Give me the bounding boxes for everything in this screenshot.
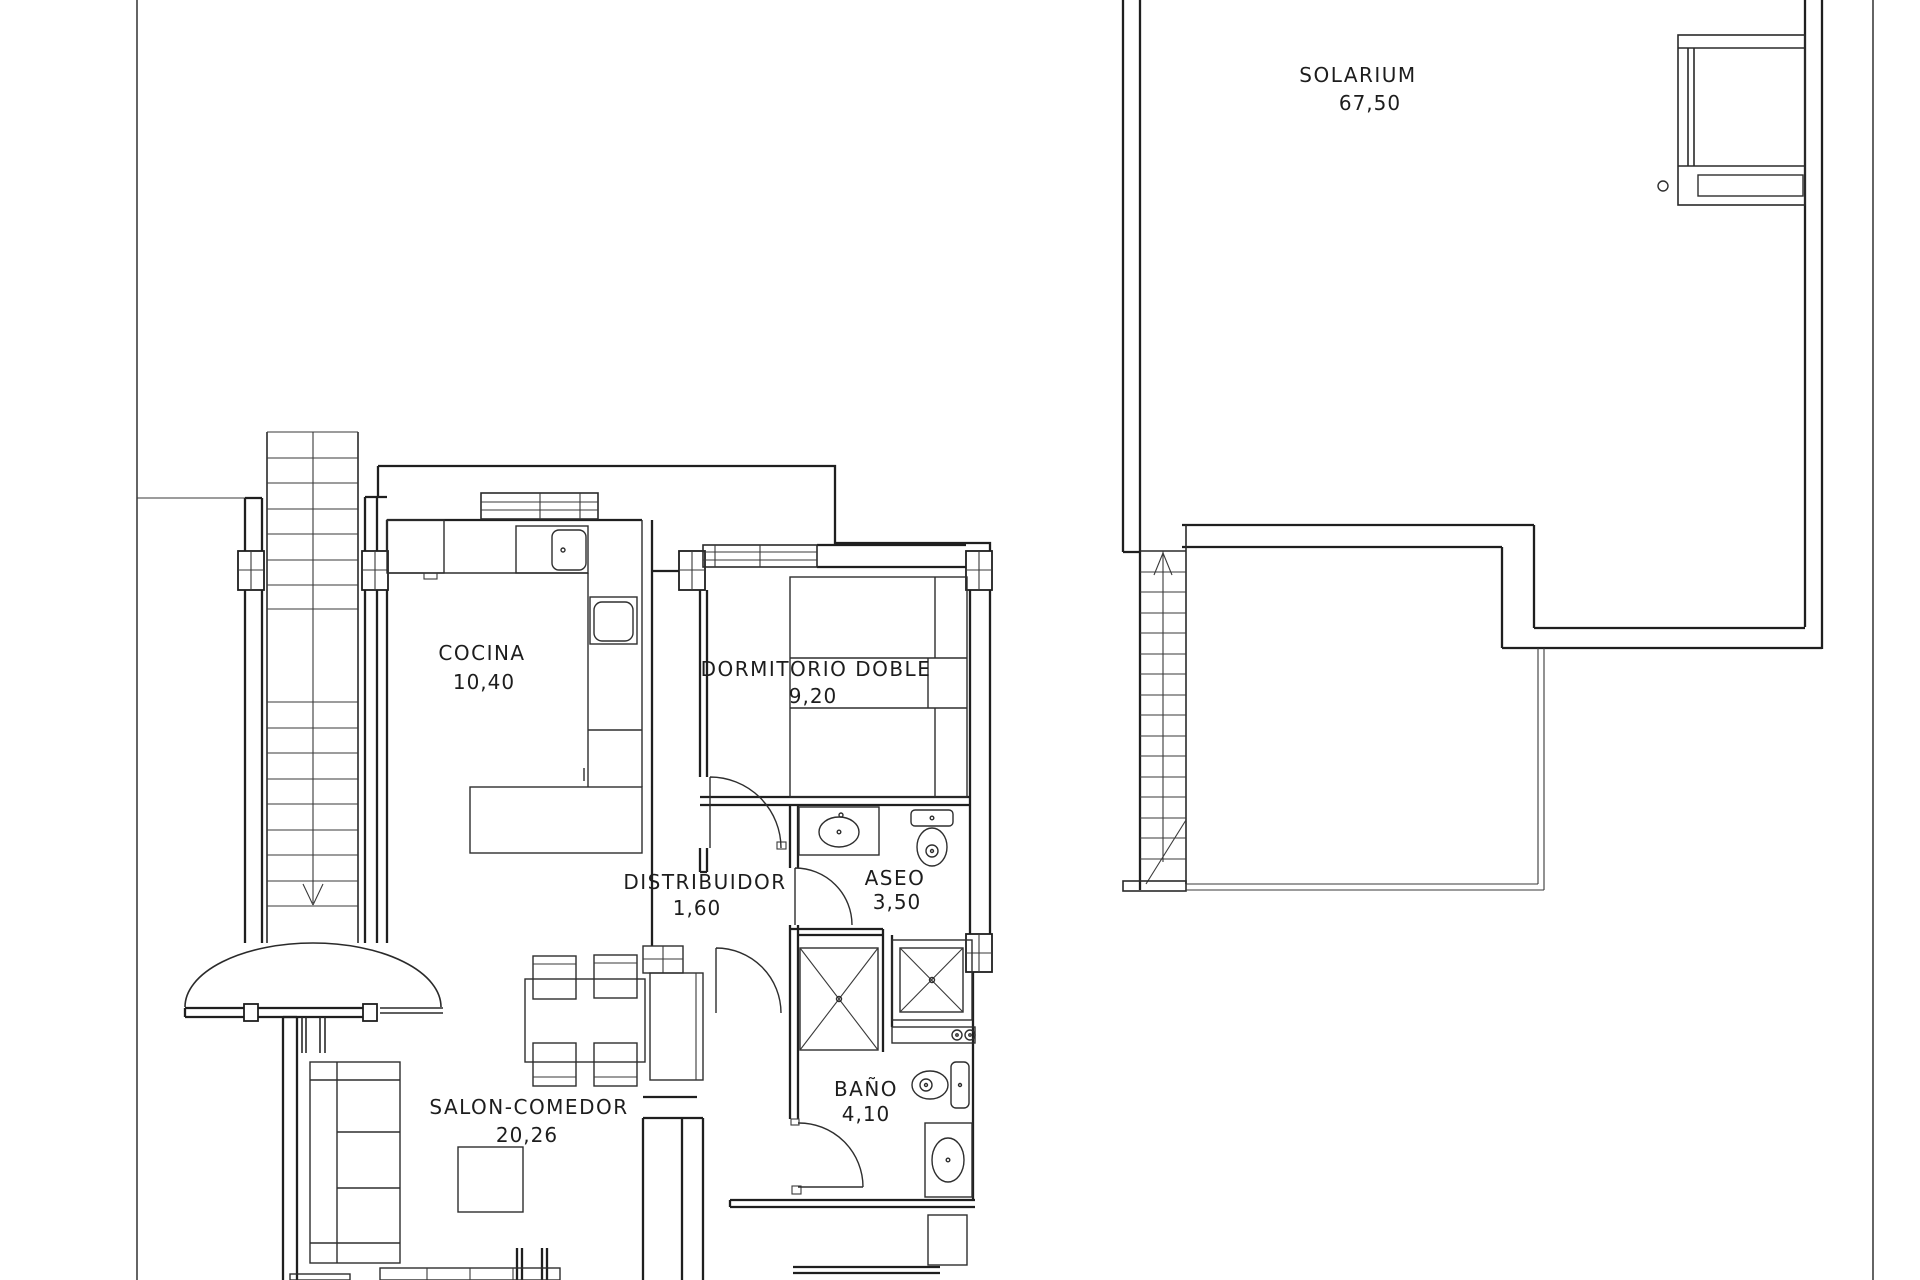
terrace-parapet — [1186, 648, 1544, 890]
bathroom-door — [798, 1123, 863, 1187]
solarium-plan: SOLARIUM 67,50 — [1123, 0, 1822, 891]
kitchen-counter — [470, 787, 642, 853]
site-boundary-lines — [137, 0, 1873, 1280]
sideboard — [650, 973, 703, 1080]
bano-area: 4,10 — [842, 1102, 891, 1126]
drain-symbol — [1658, 181, 1668, 191]
aseo-toilet-bowl — [917, 828, 947, 866]
bedroom-door — [710, 777, 781, 848]
entry-door-leaf — [380, 1008, 443, 1013]
solarium-label: SOLARIUM — [1299, 63, 1416, 87]
bath-toilet-tank — [951, 1062, 969, 1108]
aseo-door — [795, 868, 852, 925]
windows — [481, 493, 817, 567]
salon-label: SALON-COMEDOR — [429, 1095, 628, 1119]
floor-plan-page: SOLARIUM 67,50 — [0, 0, 1920, 1280]
bano-label: BAÑO — [834, 1077, 898, 1101]
hall-door — [716, 948, 781, 1013]
door-swings — [710, 777, 863, 1187]
coffee-table — [458, 1147, 523, 1212]
aseo-area: 3,50 — [873, 890, 922, 914]
aseo-toilet-tank — [911, 810, 953, 826]
room-labels: COCINA 10,40 DORMITORIO DOBLE 9,20 DISTR… — [429, 641, 931, 1147]
distribuidor-area: 1,60 — [673, 896, 722, 920]
aseo-basin — [819, 817, 859, 847]
aseo-fixtures — [799, 807, 953, 866]
kitchen-cabinet — [387, 520, 444, 573]
aseo-label: ASEO — [865, 866, 926, 890]
dormitorio-label: DORMITORIO DOBLE — [701, 657, 932, 681]
cocina-label: COCINA — [438, 641, 525, 665]
dining-chairs — [533, 955, 637, 1086]
bath-basin — [932, 1138, 964, 1182]
porch-arc — [185, 943, 441, 1007]
bath-toilet-bowl — [912, 1071, 948, 1099]
cocina-area: 10,40 — [453, 670, 515, 694]
entrance-stairs — [185, 432, 443, 1053]
dormitorio-area: 9,20 — [789, 684, 838, 708]
solarium-pergola-structure — [1658, 35, 1805, 205]
floor-plan-drawing: SOLARIUM 67,50 — [0, 0, 1920, 1280]
sofa — [310, 1062, 400, 1263]
entry-threshold — [302, 1017, 325, 1053]
dining-table — [525, 979, 645, 1062]
solarium-area: 67,50 — [1339, 91, 1401, 115]
bedroom-window — [703, 545, 817, 567]
sink-bowl — [552, 530, 586, 570]
solarium-stairs — [1123, 525, 1186, 891]
distribuidor-label: DISTRIBUIDOR — [623, 870, 786, 894]
bathroom-fixtures — [800, 940, 975, 1197]
salon-area: 20,26 — [496, 1123, 558, 1147]
stair-break-line — [1146, 820, 1186, 884]
laundry-box — [928, 1215, 967, 1265]
kitchen-window — [481, 493, 598, 519]
